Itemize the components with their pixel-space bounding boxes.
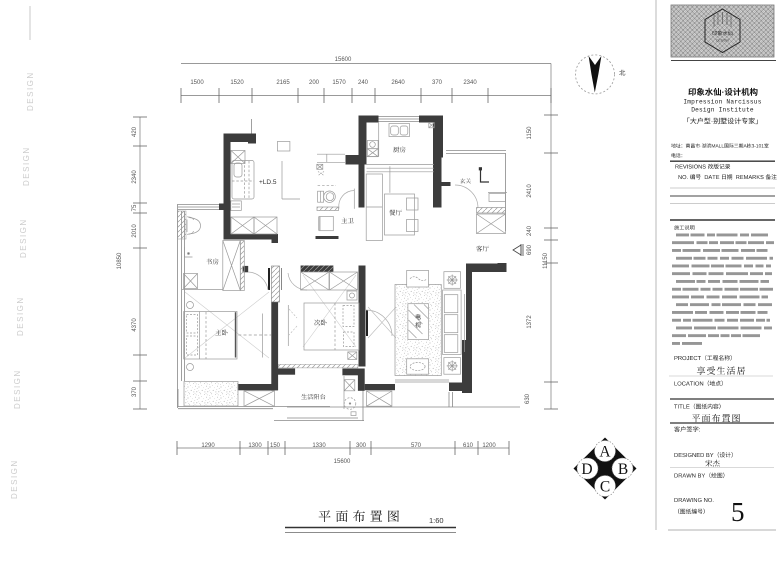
svg-text:A: A: [599, 444, 611, 461]
svg-text:690: 690: [527, 244, 533, 255]
svg-text:1330: 1330: [312, 443, 326, 449]
svg-text:15600: 15600: [335, 57, 352, 63]
svg-text:1290: 1290: [201, 443, 215, 449]
svg-text:1372: 1372: [527, 315, 533, 329]
svg-text:1520: 1520: [230, 80, 244, 86]
svg-text:1500: 1500: [190, 80, 204, 86]
svg-text:240: 240: [527, 225, 533, 236]
svg-text:300: 300: [356, 443, 367, 449]
svg-text:1570: 1570: [332, 80, 346, 86]
svg-text:2640: 2640: [391, 80, 405, 86]
svg-text:370: 370: [132, 386, 138, 397]
svg-text:1300: 1300: [248, 443, 262, 449]
svg-text:C: C: [600, 479, 610, 496]
svg-text:75: 75: [132, 204, 138, 211]
svg-text:240: 240: [358, 80, 369, 86]
svg-text:Design Institute: Design Institute: [691, 107, 754, 114]
svg-text:1:60: 1:60: [429, 516, 444, 525]
svg-text:630: 630: [525, 393, 531, 404]
svg-text:420: 420: [132, 126, 138, 137]
svg-text:610: 610: [463, 443, 474, 449]
svg-text:200: 200: [309, 80, 320, 86]
svg-text:2340: 2340: [132, 170, 138, 184]
svg-text:2165: 2165: [276, 80, 290, 86]
svg-text:10850: 10850: [117, 252, 123, 269]
svg-text:B: B: [618, 461, 628, 478]
svg-text:2410: 2410: [527, 184, 533, 198]
svg-text:2340: 2340: [463, 80, 477, 86]
svg-text:D: D: [581, 461, 592, 478]
svg-text:2010: 2010: [132, 224, 138, 238]
svg-text:+LD.5: +LD.5: [259, 179, 277, 186]
svg-text:1150: 1150: [527, 126, 533, 140]
svg-text:4370: 4370: [132, 318, 138, 332]
svg-text:Impression Narcissus: Impression Narcissus: [683, 99, 761, 106]
svg-text:370: 370: [432, 80, 443, 86]
svg-text:11150: 11150: [543, 252, 549, 268]
svg-text:570: 570: [411, 443, 422, 449]
svg-text:150: 150: [270, 443, 281, 449]
svg-text:15600: 15600: [334, 459, 351, 465]
svg-text:1200: 1200: [482, 443, 496, 449]
svg-text:5: 5: [731, 497, 745, 527]
